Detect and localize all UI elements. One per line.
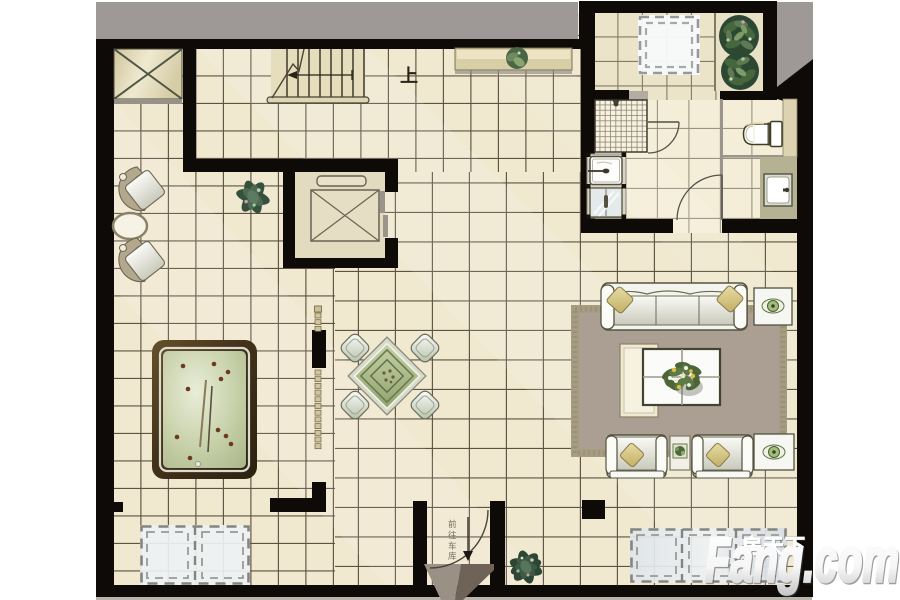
svg-text:往: 往 [448, 530, 457, 540]
svg-text:前: 前 [448, 519, 457, 529]
svg-text:库: 库 [448, 551, 457, 561]
svg-text:上: 上 [400, 66, 418, 86]
svg-text:Fang.com: Fang.com [705, 526, 899, 596]
svg-text:车: 车 [448, 541, 457, 551]
